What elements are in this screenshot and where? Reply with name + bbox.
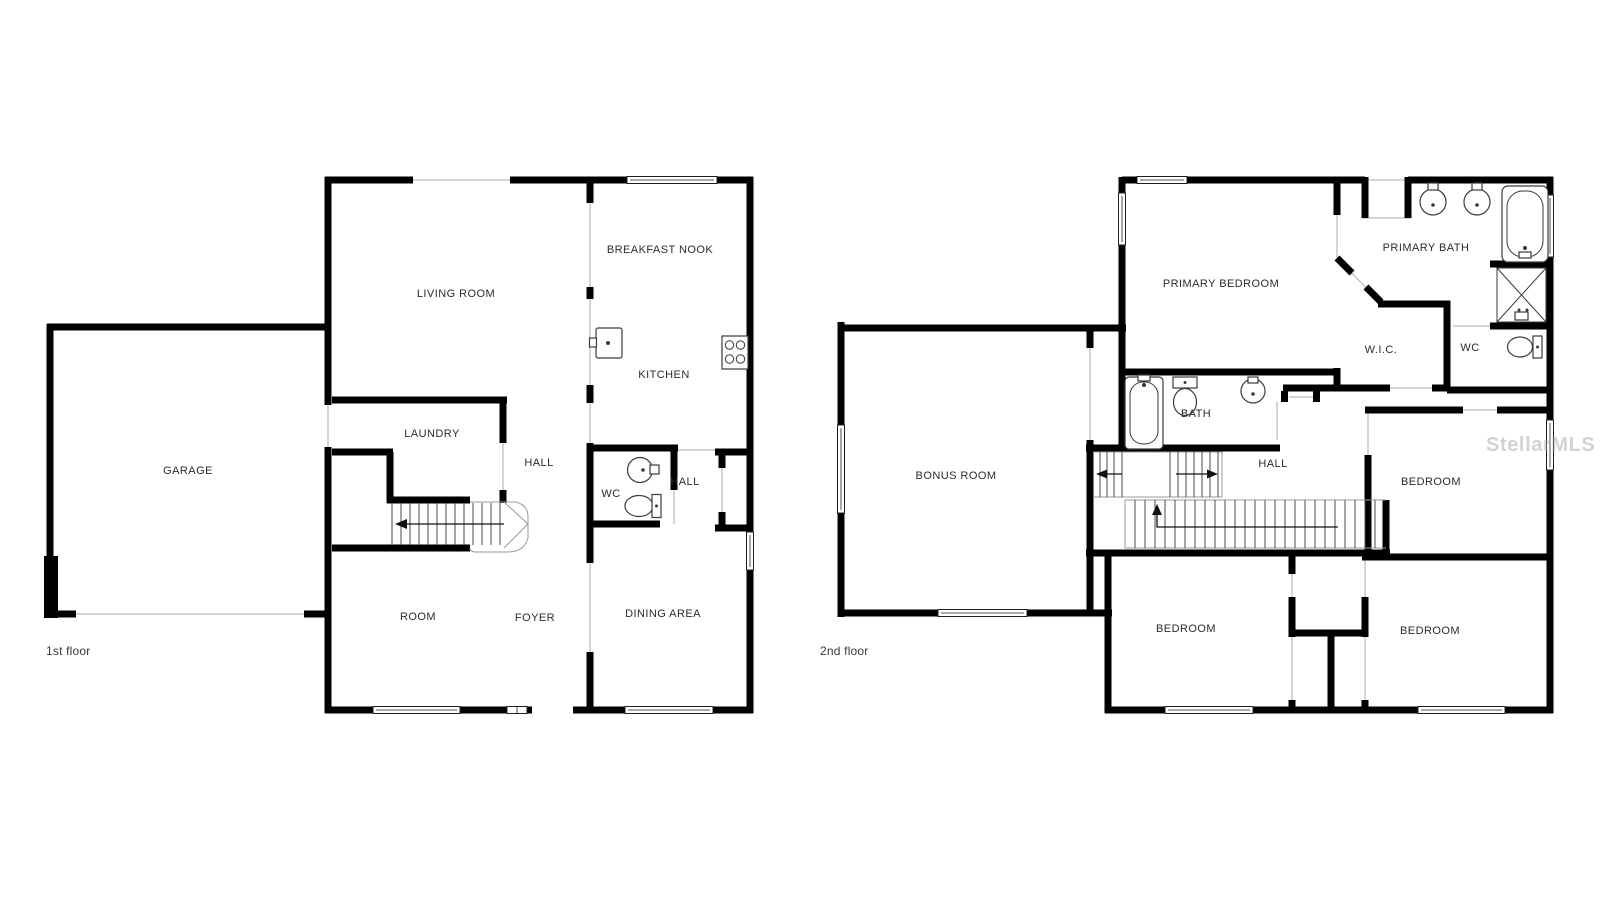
- window: [1137, 177, 1187, 184]
- room-label-bedroom-2: BEDROOM: [1156, 623, 1216, 635]
- room-label-laundry: LAUNDRY: [404, 428, 460, 440]
- kitchen-sink-icon: [590, 328, 623, 358]
- window: [507, 707, 527, 714]
- window: [1165, 707, 1253, 714]
- room-label-garage: GARAGE: [163, 465, 213, 477]
- room-label-wc: WC: [601, 488, 620, 500]
- window: [627, 177, 717, 184]
- toilet-icon: [625, 495, 661, 518]
- room-label-wic: W.I.C.: [1365, 344, 1398, 356]
- hall-niche-stub: [1313, 391, 1320, 402]
- room-label-bath: BATH: [1181, 408, 1211, 420]
- bathroom-sink-icon: [1464, 183, 1490, 215]
- room-label-primary-bedroom: PRIMARY BEDROOM: [1163, 278, 1279, 290]
- room-label-wc: WC: [1460, 342, 1479, 354]
- bathroom-sink-icon: [1241, 377, 1265, 403]
- room-label-foyer: FOYER: [515, 612, 555, 624]
- stair-arrow-icon: [1207, 470, 1218, 479]
- room-label-hall-1: HALL: [524, 457, 553, 469]
- stair-arrow-icon: [1096, 470, 1107, 479]
- room-label-bedroom-3: BEDROOM: [1400, 625, 1460, 637]
- floor1-plan: GARAGE LIVING ROOM BREAKFAST NOOK KITCHE…: [44, 177, 754, 714]
- window: [838, 425, 845, 513]
- window: [625, 707, 713, 714]
- floor2-caption: 2nd floor: [820, 644, 869, 658]
- bathroom-sink-icon: [1420, 183, 1446, 215]
- room-label-hall: HALL: [1258, 458, 1287, 470]
- room-label-bonus-room: BONUS ROOM: [916, 470, 997, 482]
- room-label-dining-area: DINING AREA: [625, 608, 701, 620]
- floor-plan-canvas: GARAGE LIVING ROOM BREAKFAST NOOK KITCHE…: [0, 0, 1600, 899]
- stair-arrow-icon: [1152, 504, 1162, 515]
- window: [373, 707, 460, 714]
- floor1-caption: 1st floor: [46, 644, 91, 658]
- floor2-plan: PRIMARY BEDROOM PRIMARY BATH W.I.C. WC B…: [820, 177, 1554, 714]
- window: [1418, 707, 1505, 714]
- window: [1119, 193, 1126, 245]
- room-label-room: ROOM: [400, 611, 436, 623]
- floor1-walls: [44, 177, 753, 713]
- watermark: StellarMLS: [1486, 434, 1595, 456]
- room-label-living-room: LIVING ROOM: [417, 288, 495, 300]
- window: [747, 532, 754, 570]
- floor2-stairs: [1093, 452, 1386, 548]
- bathtub-icon: [1125, 375, 1163, 449]
- wc-sink-icon: [628, 458, 660, 483]
- floor-plan-page: GARAGE LIVING ROOM BREAKFAST NOOK KITCHE…: [0, 0, 1600, 899]
- floor1-windows: [373, 177, 754, 714]
- room-label-bedroom-1: BEDROOM: [1401, 476, 1461, 488]
- stove-icon: [722, 336, 748, 369]
- toilet-icon: [1508, 336, 1543, 358]
- room-label-primary-bath: PRIMARY BATH: [1383, 242, 1470, 254]
- room-label-kitchen: KITCHEN: [638, 369, 689, 381]
- room-label-hall-2: HALL: [670, 476, 699, 488]
- room-label-breakfast-nook: BREAKFAST NOOK: [607, 244, 714, 256]
- shower-icon: [1497, 268, 1546, 322]
- floor1-labels: GARAGE LIVING ROOM BREAKFAST NOOK KITCHE…: [163, 244, 713, 624]
- window: [938, 610, 1027, 617]
- bathtub-icon: [1502, 186, 1548, 262]
- hall-niche-stub: [1281, 391, 1288, 402]
- garage-pillar: [44, 556, 58, 618]
